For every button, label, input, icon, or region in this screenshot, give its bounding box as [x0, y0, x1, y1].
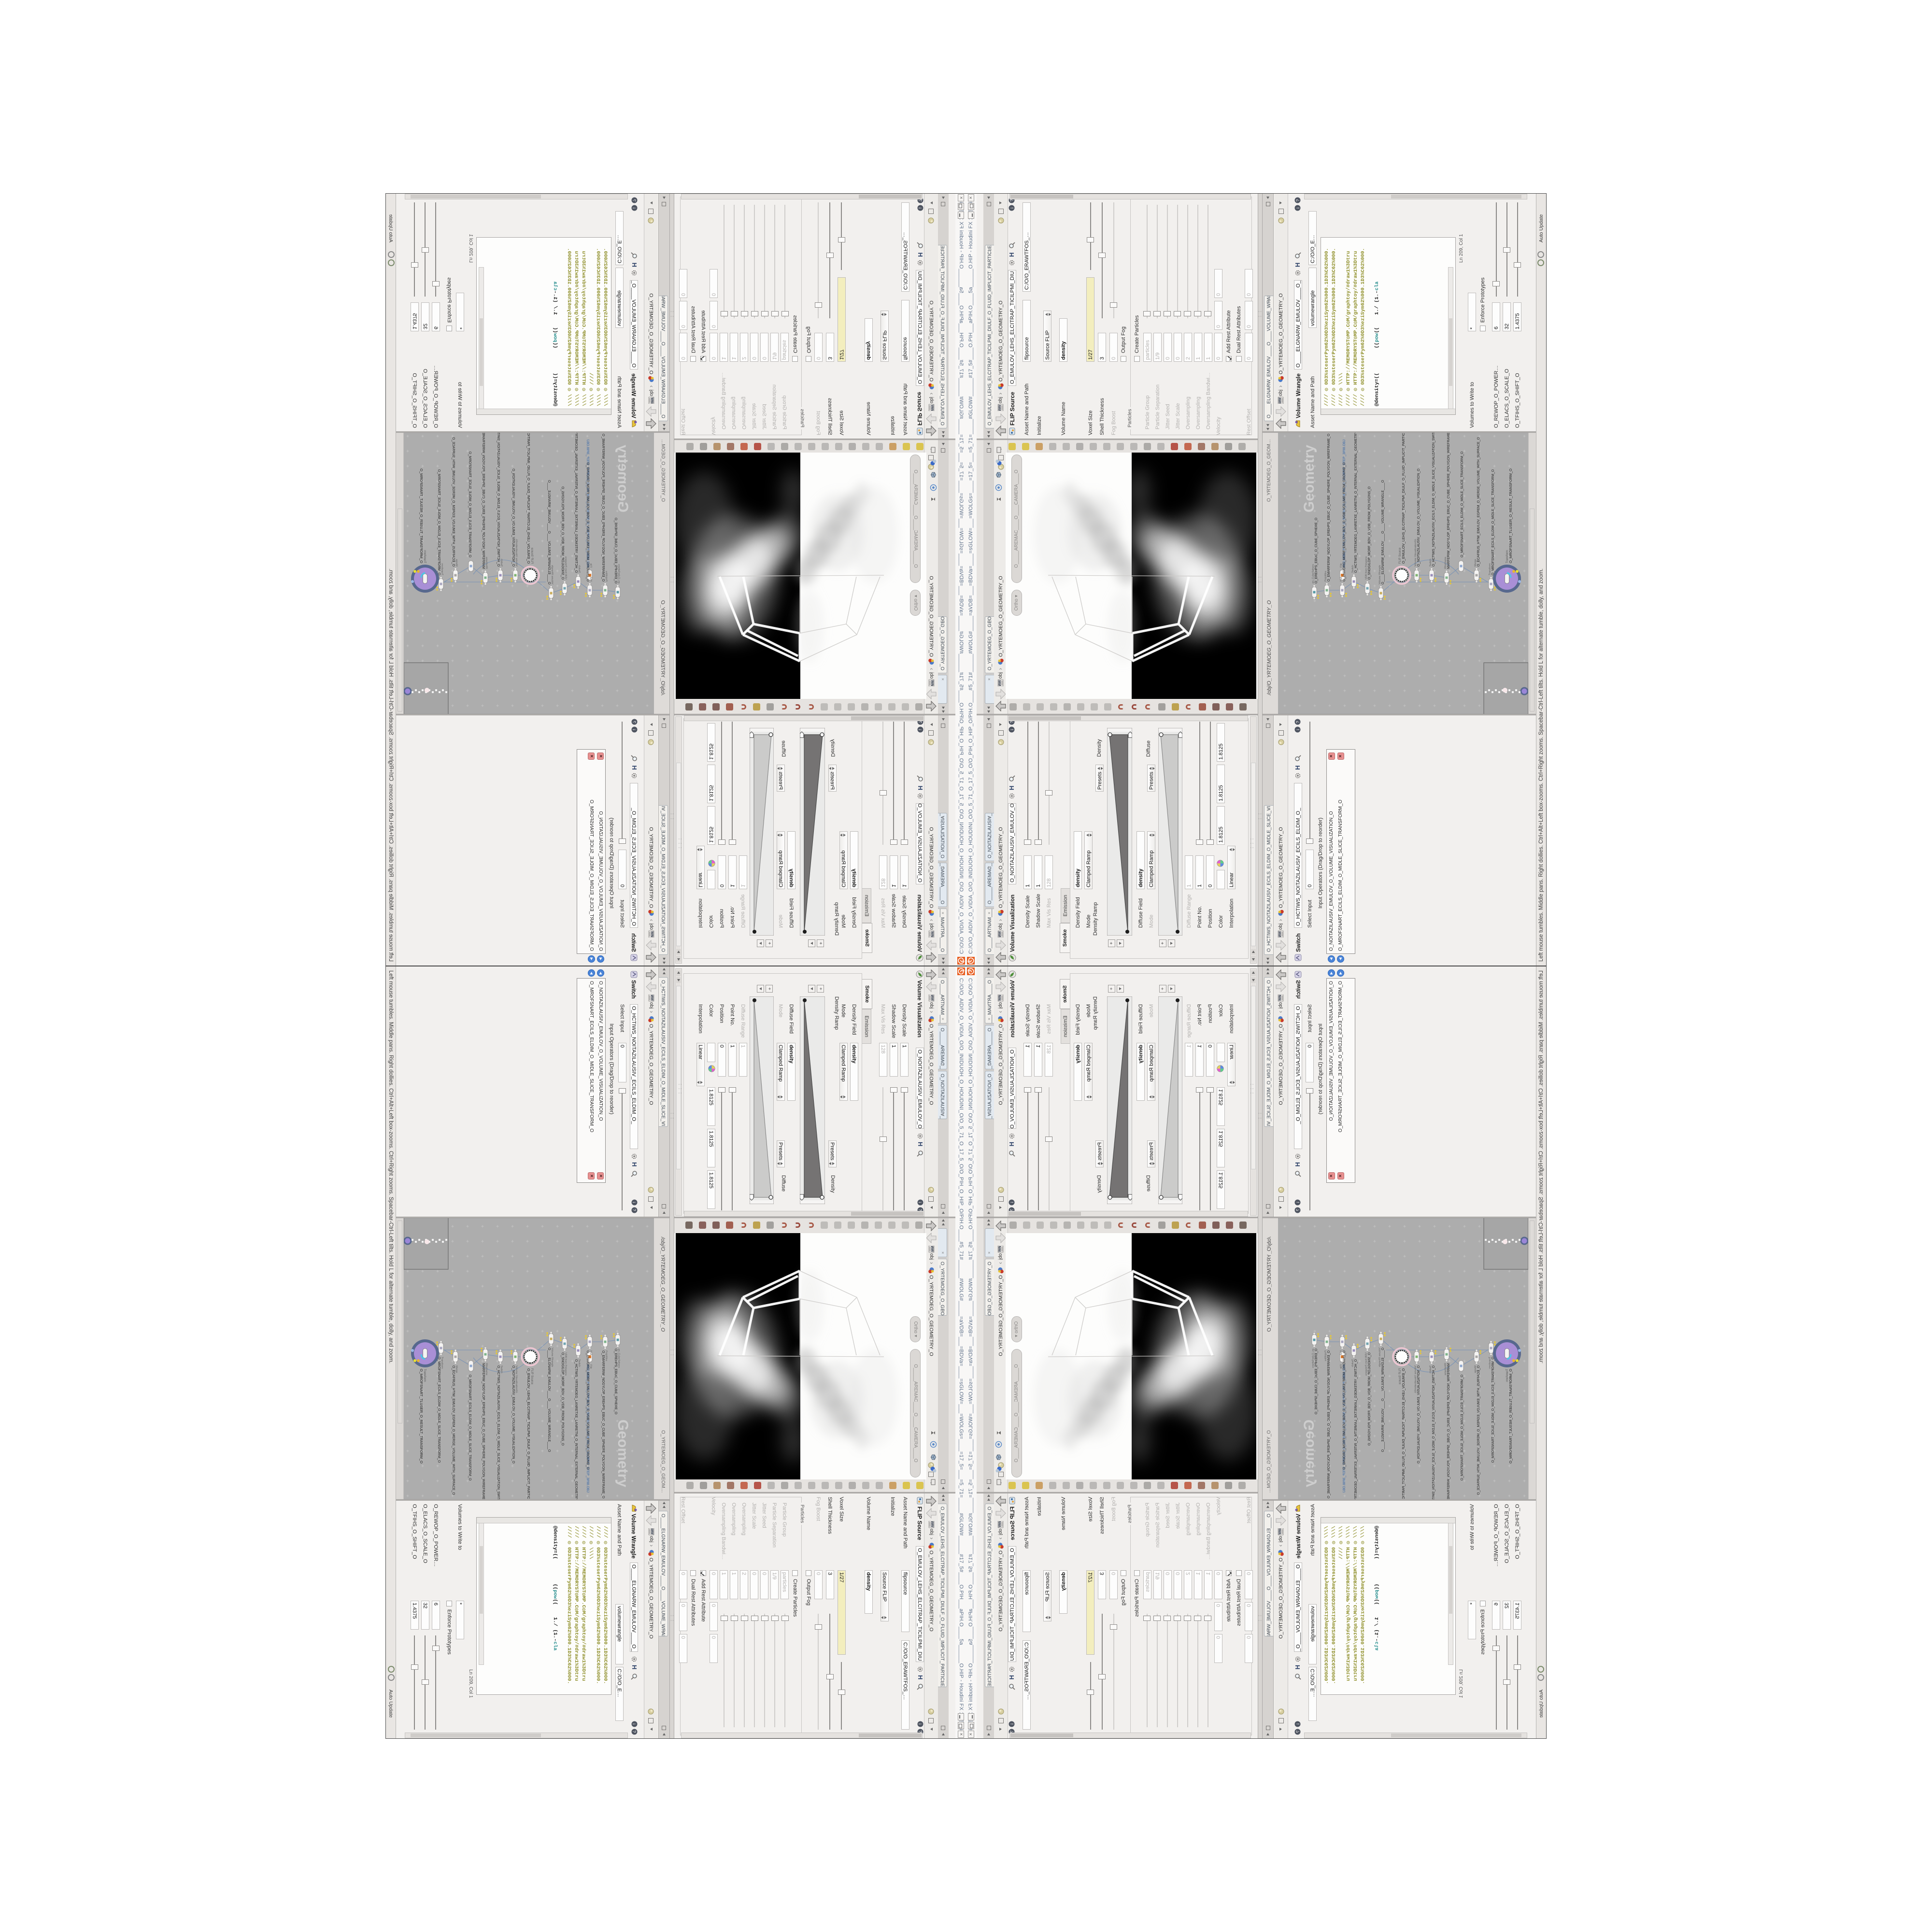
- svg-text:O_NOITAZILAUSIV_EMULOV_O_VOLUM: O_NOITAZILAUSIV_EMULOV_O_VOLUME_VISUALIZ…: [1417, 469, 1421, 567]
- svg-text:O_SNOGILOP_MORF_BDV_O_VDB_FROM: O_SNOGILOP_MORF_BDV_O_VDB_FROM_POLYGONS_…: [561, 486, 564, 580]
- svg-text:H: H: [1008, 253, 1015, 257]
- svg-text:O_HCTIWS_YRTEMOEG_LANRETXE_LAN: O_HCTIWS_YRTEMOEG_LANRETXE_LANRETNI_O_IN…: [574, 432, 578, 573]
- svg-text:File: File: [589, 563, 592, 568]
- svg-text:H: H: [1294, 1665, 1301, 1669]
- svg-text:H: H: [1294, 766, 1301, 770]
- svg-text:O_MROFSNART_ECILS_ELDIM_O_MIDL: O_MROFSNART_ECILS_ELDIM_O_MIDLE_SLICE_TR…: [468, 1375, 471, 1481]
- svg-text:i: i: [1009, 207, 1014, 209]
- svg-text:H: H: [1008, 1675, 1015, 1679]
- svg-text:O_EREHPS_EBUC_O_CUBE_SPHERE_O: O_EREHPS_EBUC_O_CUBE_SPHERE_O: [1315, 1349, 1318, 1415]
- svg-text:i: i: [1295, 207, 1300, 209]
- svg-text:i: i: [918, 729, 923, 730]
- svg-text:H: H: [1008, 1142, 1015, 1146]
- svg-text:O_SNOGILOP_MORF_BDV_O_VDB_FROM: O_SNOGILOP_MORF_BDV_O_VDB_FROM_POLYGONS_…: [1368, 1352, 1371, 1446]
- svg-text:O_HCTIWS_NOITAZILAUSIV_ECILS_E: O_HCTIWS_NOITAZILAUSIV_ECILS_ELDIM_O_MID…: [497, 1365, 500, 1500]
- svg-text:MARFERIW_NOGYLOP_EREHPS_EBUC_O: MARFERIW_NOGYLOP_EREHPS_EBUC_O_CUBE_SPHE…: [1447, 1363, 1450, 1500]
- svg-text:O_EMARFERIW_NOGYLOP_EREHPS_EBU: O_EMARFERIW_NOGYLOP_EREHPS_EBUC_O_CUBE_S…: [601, 1350, 605, 1499]
- svg-text:Transform: Transform: [440, 563, 443, 575]
- svg-text:?: ?: [918, 199, 923, 201]
- svg-text:O_MROFSNART_ECILS_ELDIM_O_MIDL: O_MROFSNART_ECILS_ELDIM_O_MIDLE_SLICE_TR…: [468, 451, 471, 557]
- svg-text:H: H: [631, 1665, 638, 1669]
- svg-text:i: i: [918, 207, 923, 209]
- svg-text:O_EMARFERIW_NOGYLOP_EREHPS_EBU: O_EMARFERIW_NOGYLOP_EREHPS_EBUC_O_CUBE_S…: [601, 433, 605, 582]
- svg-text:H: H: [917, 786, 924, 790]
- svg-text:H: H: [917, 253, 924, 257]
- svg-text:?: ?: [918, 721, 923, 723]
- svg-text:i: i: [1009, 729, 1014, 730]
- svg-text:H: H: [917, 1675, 924, 1679]
- svg-text:?: ?: [1009, 721, 1014, 723]
- svg-text:O_MROFSNART_TLUSER_O_RESULT_TR: O_MROFSNART_TLUSER_O_RESULT_TRANSFORM_O: [1508, 1369, 1513, 1463]
- svg-text:O_MROFSNART_TLUSER_O_RESULT_TR: O_MROFSNART_TLUSER_O_RESULT_TRANSFORM_O: [1508, 469, 1513, 563]
- svg-text:Null: Null: [589, 577, 592, 582]
- svg-text:O_SNOGILOP_MORF_BDV_O_VDB_FROM: O_SNOGILOP_MORF_BDV_O_VDB_FROM_POLYGONS_…: [1368, 486, 1371, 580]
- svg-text:VDB from Polygons: VDB from Polygons: [564, 556, 567, 580]
- svg-text:File: File: [589, 1364, 592, 1369]
- svg-text:Volume Wrangle: Volume Wrangle: [551, 1348, 554, 1367]
- svg-text:?: ?: [1295, 721, 1300, 723]
- svg-text:Volume Wrangle: Volume Wrangle: [551, 565, 554, 584]
- svg-text:O_HCTIWS_YRTEMOEG_LANRETXE_LAN: O_HCTIWS_YRTEMOEG_LANRETXE_LANRETNI_O_IN…: [1354, 1359, 1358, 1500]
- svg-text:O_EREHPS_EBUC_O_CUBE_SPHERE_O: O_EREHPS_EBUC_O_CUBE_SPHERE_O: [614, 517, 617, 583]
- svg-text:H: H: [631, 1162, 638, 1166]
- svg-text:?: ?: [1009, 199, 1014, 201]
- svg-text:H: H: [631, 263, 638, 267]
- svg-text:Wireframe: Wireframe: [485, 557, 488, 569]
- svg-text:O_EMULOV_LEHS_ELCITRAP_TICILPM: O_EMULOV_LEHS_ELCITRAP_TICILPMI_DIULF_O_…: [526, 1368, 531, 1500]
- svg-text:O_HCTIWS_YRTEMOEG_LANRETXE_LAN: O_HCTIWS_YRTEMOEG_LANRETXE_LANRETNI_O_IN…: [574, 1359, 578, 1500]
- svg-text:O_DNUORG_MORF_EMULOV_BDV_O_VDB: O_DNUORG_MORF_EMULOV_BDV_O_VDB_VOLUME_FR…: [1343, 462, 1346, 582]
- svg-text:O_MROFSNART_TLUSER_O_RESULT_TR: O_MROFSNART_TLUSER_O_RESULT_TRANSFORM_O: [419, 469, 424, 563]
- svg-text:?: ?: [1295, 1209, 1300, 1211]
- svg-text:O_EMULOV_LEHS_ELCITRAP_TICILPM: O_EMULOV_LEHS_ELCITRAP_TICILPMI_DIULF_O_…: [1401, 1368, 1406, 1500]
- svg-text:Volume VisualizationGL: Volume VisualizationGL: [515, 1365, 518, 1393]
- svg-text:MARFERIW_NOGYLOP_EREHPS_EBUC_O: MARFERIW_NOGYLOP_EREHPS_EBUC_O_CUBE_SPHE…: [482, 432, 485, 569]
- svg-text:?: ?: [1295, 199, 1300, 201]
- svg-text:O_MROFSNART_ECILS_ELDIM_O_MIDL: O_MROFSNART_ECILS_ELDIM_O_MIDLE_SLICE_TR…: [437, 469, 440, 575]
- svg-text:O_MROFSNART_ECILS_ELDIM_O_MIDL: O_MROFSNART_ECILS_ELDIM_O_MIDLE_SLICE_TR…: [1492, 469, 1495, 575]
- svg-text:O_MROFSNART_ECILS_ELDIM_O_MIDL: O_MROFSNART_ECILS_ELDIM_O_MIDLE_SLICE_TR…: [1461, 451, 1464, 557]
- svg-text:O_HCTIWS_NOITAZILAUSIV_ECILS_E: O_HCTIWS_NOITAZILAUSIV_ECILS_ELDIM_O_MID…: [497, 432, 500, 567]
- svg-text:MARFERIW_NOGYLOP_EREHPS_EBUC_O: MARFERIW_NOGYLOP_EREHPS_EBUC_O_CUBE_SPHE…: [1447, 432, 1450, 569]
- svg-text:Switch: Switch: [578, 565, 581, 573]
- svg-text:O_EREHPS_EBUC_O_CUBE_SPHERE_O: O_EREHPS_EBUC_O_CUBE_SPHERE_O: [1315, 517, 1318, 583]
- svg-text:?: ?: [1295, 1731, 1300, 1733]
- svg-text:O____ELGNARW_EMULOV____O____VO: O____ELGNARW_EMULOV____O____VOLUME_WRANG…: [547, 1348, 551, 1452]
- svg-text:O_NOITAZILAUSIV_EMULOV_O_VOLUM: O_NOITAZILAUSIV_EMULOV_O_VOLUME_VISUALIZ…: [1417, 1365, 1421, 1463]
- svg-text:O____ELGNARW_EMULOV____O____VO: O____ELGNARW_EMULOV____O____VOLUME_WRANG…: [1381, 1348, 1385, 1452]
- svg-text:PolyWire: PolyWire: [605, 1350, 608, 1361]
- svg-text:Geometry: Geometry: [1301, 445, 1317, 512]
- svg-text:Switch: Switch: [578, 1359, 581, 1367]
- svg-text:O_EMULOV_LEHS_ELCITRAP_TICILPM: O_EMULOV_LEHS_ELCITRAP_TICILPMI_DIULF_O_…: [1401, 432, 1406, 564]
- svg-text:i: i: [632, 729, 637, 730]
- svg-text:O_DNUORG_MORF_EMULOV_BDV_O_VDB: O_DNUORG_MORF_EMULOV_BDV_O_VDB_VOLUME_FR…: [1343, 1350, 1346, 1470]
- svg-text:MARFERIW_NOGYLOP_EREHPS_EBUC_O: MARFERIW_NOGYLOP_EREHPS_EBUC_O_CUBE_SPHE…: [482, 1363, 485, 1500]
- svg-text:O_SNOGILOP_MORF_BDV_O_VDB_FROM: O_SNOGILOP_MORF_BDV_O_VDB_FROM_POLYGONS_…: [561, 1352, 564, 1446]
- svg-text:an_CubeSphere: an_CubeSphere: [617, 1349, 620, 1368]
- svg-text:Geometry: Geometry: [615, 1420, 631, 1487]
- svg-text:O_DNUORG_MORF_EMULOV_BDV_O_VDB: O_DNUORG_MORF_EMULOV_BDV_O_VDB_VOLUME_FR…: [586, 1350, 589, 1470]
- svg-text:?: ?: [632, 721, 637, 723]
- svg-text:Wireframe: Wireframe: [485, 1363, 488, 1375]
- svg-text:i: i: [1295, 729, 1300, 730]
- svg-text:O_ECAFRUS_HTIW_EMULOV_EGREM_O_: O_ECAFRUS_HTIW_EMULOV_EGREM_O_MERGE_VOLU…: [1477, 437, 1480, 567]
- svg-text:Geometry: Geometry: [1301, 1420, 1317, 1487]
- svg-text:O_ECAFRUS_HTIW_EMULOV_EGREM_O_: O_ECAFRUS_HTIW_EMULOV_EGREM_O_MERGE_VOLU…: [452, 437, 455, 567]
- svg-text:O_MROFSNART_ECILS_ELDIM_O_MIDL: O_MROFSNART_ECILS_ELDIM_O_MIDLE_SLICE_TR…: [1492, 1357, 1495, 1463]
- svg-text:O_NOITAZILAUSIV_EMULOV_O_VOLUM: O_NOITAZILAUSIV_EMULOV_O_VOLUME_VISUALIZ…: [511, 1365, 515, 1463]
- svg-text:O____ELGNARW_EMULOV____O____VO: O____ELGNARW_EMULOV____O____VOLUME_WRANG…: [1381, 480, 1385, 584]
- svg-text:Transform: Transform: [440, 1357, 443, 1369]
- svg-text:O_EMULOV_LEHS_ELCITRAP_TICILPM: O_EMULOV_LEHS_ELCITRAP_TICILPMI_DIULF_O_…: [526, 432, 531, 564]
- svg-text:H: H: [1008, 786, 1015, 790]
- svg-text:Volume VisualizationGL: Volume VisualizationGL: [515, 539, 518, 567]
- svg-text:H: H: [631, 766, 638, 770]
- svg-text:Merge: Merge: [455, 1365, 458, 1373]
- svg-text:Geometry: Geometry: [615, 445, 631, 512]
- svg-text:Switch: Switch: [500, 559, 503, 567]
- svg-text:O_ECAFRUS_HTIW_EMULOV_EGREM_O_: O_ECAFRUS_HTIW_EMULOV_EGREM_O_MERGE_VOLU…: [452, 1365, 455, 1495]
- svg-text:VDB from Polygons: VDB from Polygons: [564, 1352, 567, 1376]
- svg-text:O_ECAFRUS_HTIW_EMULOV_EGREM_O_: O_ECAFRUS_HTIW_EMULOV_EGREM_O_MERGE_VOLU…: [1477, 1365, 1480, 1495]
- svg-text:an_CubeSphere: an_CubeSphere: [617, 564, 620, 583]
- svg-text:O_MROFSNART_ECILS_ELDIM_O_MIDL: O_MROFSNART_ECILS_ELDIM_O_MIDLE_SLICE_TR…: [437, 1357, 440, 1463]
- svg-text:O_NOITAZILAUSIV_EMULOV_O_VOLUM: O_NOITAZILAUSIV_EMULOV_O_VOLUME_VISUALIZ…: [511, 469, 515, 567]
- svg-text:?: ?: [632, 199, 637, 201]
- svg-text:Switch: Switch: [500, 1365, 503, 1373]
- svg-text:O_HCTIWS_NOITAZILAUSIV_ECILS_E: O_HCTIWS_NOITAZILAUSIV_ECILS_ELDIM_O_MID…: [1432, 1365, 1435, 1500]
- svg-text:O_MROFSNART_TLUSER_O_RESULT_TR: O_MROFSNART_TLUSER_O_RESULT_TRANSFORM_O: [419, 1369, 424, 1463]
- svg-text:O____ELGNARW_EMULOV____O____VO: O____ELGNARW_EMULOV____O____VOLUME_WRANG…: [547, 480, 551, 584]
- svg-text:i: i: [632, 207, 637, 209]
- svg-text:H: H: [1294, 1162, 1301, 1166]
- svg-text:?: ?: [632, 1731, 637, 1733]
- svg-text:O_HCTIWS_NOITAZILAUSIV_ECILS_E: O_HCTIWS_NOITAZILAUSIV_ECILS_ELDIM_O_MID…: [1432, 432, 1435, 567]
- svg-text:?: ?: [632, 1209, 637, 1211]
- svg-text:Merge: Merge: [455, 559, 458, 567]
- svg-text:O_HCTIWS_YRTEMOEG_LANRETXE_LAN: O_HCTIWS_YRTEMOEG_LANRETXE_LANRETNI_O_IN…: [1354, 432, 1358, 573]
- svg-text:H: H: [1294, 263, 1301, 267]
- svg-text:PolyWire: PolyWire: [605, 571, 608, 582]
- svg-text:O_DNUORG_MORF_EMULOV_BDV_O_VDB: O_DNUORG_MORF_EMULOV_BDV_O_VDB_VOLUME_FR…: [586, 462, 589, 582]
- svg-text:O_EREHPS_EBUC_O_CUBE_SPHERE_O: O_EREHPS_EBUC_O_CUBE_SPHERE_O: [614, 1349, 617, 1415]
- svg-text:Null: Null: [589, 1350, 592, 1355]
- svg-text:H: H: [917, 1142, 924, 1146]
- svg-text:O_EMARFERIW_NOGYLOP_EREHPS_EBU: O_EMARFERIW_NOGYLOP_EREHPS_EBUC_O_CUBE_S…: [1327, 433, 1331, 582]
- svg-text:O_MROFSNART_ECILS_ELDIM_O_MIDL: O_MROFSNART_ECILS_ELDIM_O_MIDLE_SLICE_TR…: [1461, 1375, 1464, 1481]
- svg-text:O_EMARFERIW_NOGYLOP_EREHPS_EBU: O_EMARFERIW_NOGYLOP_EREHPS_EBUC_O_CUBE_S…: [1327, 1350, 1331, 1499]
